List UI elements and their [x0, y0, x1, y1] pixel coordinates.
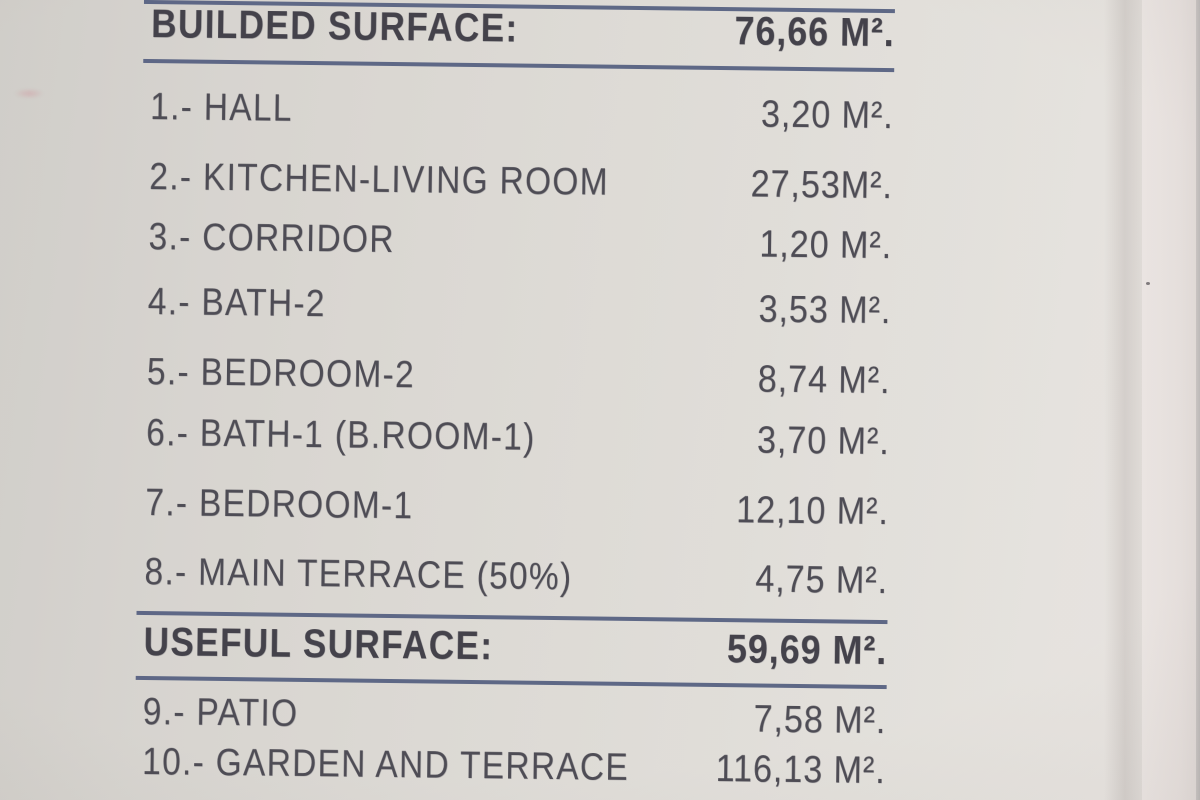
row-label: 2.- KITCHEN-LIVING ROOM [146, 157, 610, 203]
section-header-label: USEFUL SURFACE: [140, 620, 494, 668]
table-row: 4.- BATH-2 3,53 M². [144, 282, 891, 331]
photo-right-edge [1196, 0, 1200, 800]
section-header-builded: BUILDED SURFACE: 76,66 M². [147, 2, 894, 55]
row-label: 5.- BEDROOM-2 [143, 352, 415, 395]
double-rule [136, 676, 887, 689]
document-photo: BUILDED SURFACE: 76,66 M². 1.- HALL 3,20… [0, 0, 1200, 800]
table-row: 3.- CORRIDOR 1,20 M². [145, 217, 892, 266]
surface-table: BUILDED SURFACE: 76,66 M². 1.- HALL 3,20… [138, 0, 895, 800]
row-label: 4.- BATH-2 [144, 282, 326, 324]
section-header-value: 59,69 M². [693, 627, 887, 673]
double-rule [143, 59, 894, 72]
row-value: 1,20 M². [698, 224, 892, 266]
table-row: 2.- KITCHEN-LIVING ROOM 27,53M². [146, 157, 893, 206]
row-label: 9.- PATIO [139, 692, 299, 734]
row-value: 116,13 M². [692, 749, 886, 791]
section-header-label: BUILDED SURFACE: [147, 2, 518, 51]
row-value: 27,53M². [699, 164, 893, 206]
table-row: 5.- BEDROOM-2 8,74 M². [143, 352, 890, 401]
section-header-useful: USEFUL SURFACE: 59,69 M². [140, 620, 887, 673]
row-value: 8,74 M². [697, 359, 891, 401]
row-label: 7.- BEDROOM-1 [142, 483, 414, 526]
row-value: 7,58 M². [693, 699, 887, 741]
row-label: 3.- CORRIDOR [145, 217, 395, 260]
row-label: 10.- GARDEN AND TERRACE [138, 742, 629, 788]
table-row: 9.- PATIO 7,58 M². [139, 692, 886, 741]
section-header-value: 76,66 M². [701, 9, 895, 55]
row-value: 3,20 M². [700, 94, 894, 136]
row-label: 8.- MAIN TERRACE (50%) [141, 552, 573, 597]
dust-speck [1146, 282, 1150, 285]
row-label: 1.- HALL [146, 87, 293, 129]
row-value: 3,53 M². [698, 289, 892, 331]
table-row: 7.- BEDROOM-1 12,10 M². [142, 483, 889, 532]
paper-crease-shadow [1104, 0, 1142, 800]
row-value: 4,75 M². [694, 559, 888, 601]
row-label: 6.- BATH-1 (B.ROOM-1) [142, 413, 535, 458]
paper-curl-edge [1142, 0, 1196, 800]
table-row: 1.- HALL 3,20 M². [146, 87, 893, 136]
table-row: 6.- BATH-1 (B.ROOM-1) 3,70 M². [142, 413, 889, 462]
row-value: 12,10 M². [695, 490, 889, 532]
table-row: 8.- MAIN TERRACE (50%) 4,75 M². [141, 552, 888, 601]
row-value: 3,70 M². [696, 420, 890, 462]
pink-smudge-mark [14, 88, 44, 99]
table-row: 10.- GARDEN AND TERRACE 116,13 M². [138, 742, 885, 791]
